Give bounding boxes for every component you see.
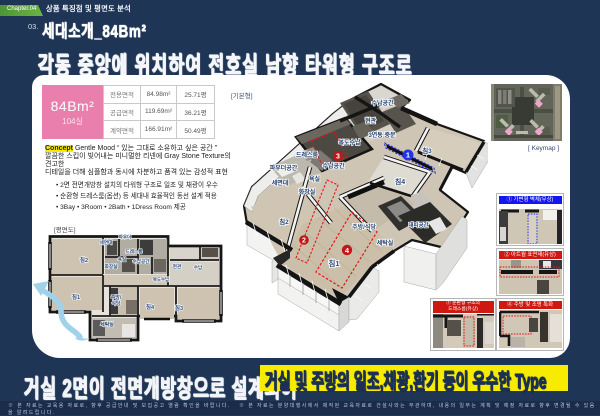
svg-text:드레스룸: 드레스룸 <box>296 151 319 159</box>
svg-text:침2: 침2 <box>80 256 88 264</box>
svg-text:침1: 침1 <box>72 293 80 301</box>
svg-text:1: 1 <box>406 151 410 160</box>
svg-text:세면대: 세면대 <box>272 179 289 187</box>
svg-text:화장실: 화장실 <box>105 263 118 270</box>
svg-text:세탁실: 세탁실 <box>377 239 394 247</box>
svg-text:2: 2 <box>302 238 306 245</box>
svg-text:현관: 현관 <box>173 263 182 270</box>
svg-text:침4: 침4 <box>146 303 155 311</box>
svg-text:주방/: 주방/ <box>111 294 122 301</box>
svg-text:식당: 식당 <box>111 300 121 307</box>
svg-text:드레스룸: 드레스룸 <box>126 248 144 255</box>
svg-text:침3: 침3 <box>175 304 183 312</box>
svg-text:대피공간: 대피공간 <box>408 221 428 229</box>
svg-text:복도수납: 복도수납 <box>338 139 361 147</box>
svg-text:침1: 침1 <box>328 258 339 268</box>
svg-text:세탁실: 세탁실 <box>100 321 114 328</box>
svg-text:욕실: 욕실 <box>118 256 126 263</box>
svg-text:복도수납: 복도수납 <box>153 276 169 283</box>
svg-text:침4: 침4 <box>395 177 405 186</box>
svg-text:3: 3 <box>336 154 340 161</box>
svg-text:주방/식당: 주방/식당 <box>352 223 376 231</box>
svg-text:수납공간: 수납공간 <box>322 162 345 170</box>
svg-text:수납공간: 수납공간 <box>371 99 394 107</box>
svg-text:수납공간: 수납공간 <box>133 258 151 265</box>
svg-text:침3: 침3 <box>422 146 432 155</box>
svg-text:화장실: 화장실 <box>299 188 316 196</box>
svg-text:수납: 수납 <box>194 264 203 271</box>
svg-text:현관: 현관 <box>365 117 377 125</box>
svg-text:욕실: 욕실 <box>309 175 321 183</box>
svg-text:파우더: 파우더 <box>119 234 132 241</box>
svg-text:세면대: 세면대 <box>100 239 113 246</box>
svg-text:침2: 침2 <box>279 217 289 226</box>
svg-text:3연동 중문: 3연동 중문 <box>368 131 396 139</box>
svg-text:파우더공간: 파우더공간 <box>270 164 298 172</box>
